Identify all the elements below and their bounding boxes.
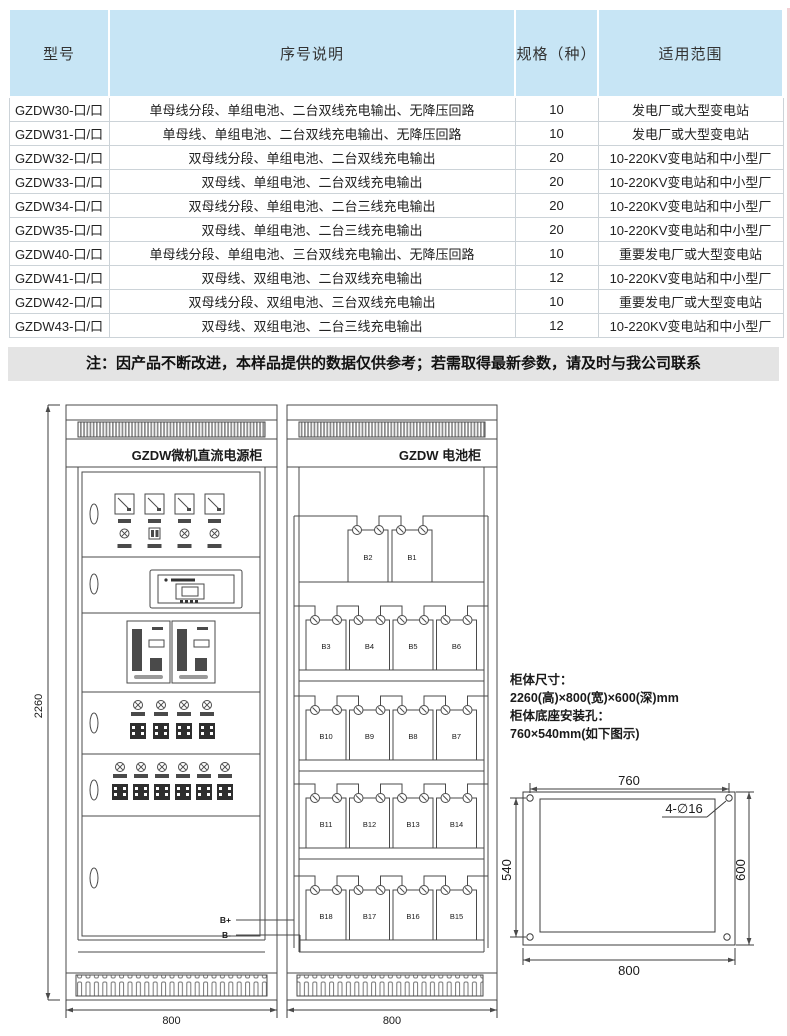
left-width-dimension-label: 800 (162, 1015, 180, 1027)
battery-jumper-wire (337, 784, 359, 794)
spec-cell: 10 (515, 289, 598, 313)
battery-row-wire (468, 876, 489, 886)
battery-jumper-wire (337, 606, 359, 616)
battery-cabinet-title: GZDW 电池柜 (399, 448, 481, 463)
battery-cell: B15 (437, 885, 477, 940)
specs-line-1: 柜体尺寸： (509, 672, 573, 687)
battery-label: B5 (408, 642, 417, 651)
terminal-positive-label: B+ (220, 915, 231, 925)
specs-line-2: 2260(高)×800(宽)×600(深)mm (510, 690, 679, 705)
base-mounting-plan: 4-∅16 760800540600 (499, 773, 754, 978)
model-cell: GZDW34-口/口 (9, 193, 109, 217)
door-handle (90, 504, 98, 524)
col-header-range: 适用范围 (598, 9, 783, 97)
disclaimer-note: 注：因产品不断改进，本样品提供的数据仅供参考；若需取得最新参数，请及时与我公司联… (8, 347, 779, 381)
right-width-dimension-label: 800 (383, 1015, 401, 1027)
table-row: GZDW32-口/口双母线分段、单组电池、二台双线充电输出2010-220KV变… (9, 145, 783, 169)
charger-module (127, 621, 170, 683)
battery-cell: B7 (437, 705, 477, 760)
spec-cell: 10 (515, 121, 598, 145)
battery-jumper-wire (381, 876, 403, 886)
battery-label: B8 (408, 732, 417, 741)
panel-switch (148, 528, 162, 548)
height-dimension-label: 2260 (33, 693, 45, 717)
battery-cell: B6 (437, 615, 477, 670)
range-cell: 重要发电厂或大型变电站 (598, 241, 783, 265)
top-vent-grille (78, 422, 265, 437)
battery-row-wire (294, 876, 315, 886)
mounting-hole (527, 933, 533, 939)
battery-cell: B13 (393, 793, 433, 848)
range-cell: 10-220KV变电站和中小型厂 (598, 169, 783, 193)
battery-jumper-wire (381, 784, 403, 794)
range-cell: 10-220KV变电站和中小型厂 (598, 145, 783, 169)
battery-label: B12 (363, 820, 376, 829)
monitor-unit (150, 570, 242, 608)
col-header-model: 型号 (9, 9, 109, 97)
battery-cell: B5 (393, 615, 433, 670)
table-header-row: 型号 序号说明 规格（种） 适用范围 (9, 9, 783, 97)
table-row: GZDW31-口/口单母线、单组电池、二台双线充电输出、无降压回路10发电厂或大… (9, 121, 783, 145)
battery-row-wire (294, 606, 315, 616)
specs-line-4: 760×540mm(如下图示) (510, 726, 640, 741)
battery-jumper-wire (424, 606, 446, 616)
battery-row-wire (294, 696, 315, 706)
battery-row-wire (423, 516, 488, 526)
feeder-breaker (153, 700, 169, 739)
range-cell: 10-220KV变电站和中小型厂 (598, 193, 783, 217)
battery-row-wire (294, 516, 357, 526)
analog-meter (205, 494, 224, 523)
spec-cell: 12 (515, 313, 598, 337)
datasheet-page: 型号 序号说明 规格（种） 适用范围 GZDW30-口/口单母线分段、单组电池、… (0, 8, 790, 1036)
spec-cell: 20 (515, 193, 598, 217)
indicator-light (208, 529, 222, 548)
battery-jumper-wire (381, 696, 403, 706)
base-left-dimension-label: 540 (499, 859, 514, 881)
model-cell: GZDW32-口/口 (9, 145, 109, 169)
mounting-hole (726, 794, 732, 800)
battery-label: B15 (450, 912, 463, 921)
table-row: GZDW41-口/口双母线、双组电池、二台双线充电输出1210-220KV变电站… (9, 265, 783, 289)
battery-cell: B4 (350, 615, 390, 670)
range-cell: 10-220KV变电站和中小型厂 (598, 313, 783, 337)
model-cell: GZDW42-口/口 (9, 289, 109, 313)
battery-row-wire (468, 784, 489, 794)
door-handle (90, 780, 98, 800)
base-right-dimension-label: 600 (733, 859, 748, 881)
battery-jumper-wire (424, 696, 446, 706)
feeder-breaker (154, 762, 170, 800)
feeder-breaker (217, 762, 233, 800)
battery-label: B9 (365, 732, 374, 741)
feeder-breaker (112, 762, 128, 800)
battery-cell: B11 (306, 793, 346, 848)
desc-cell: 单母线、单组电池、二台双线充电输出、无降压回路 (109, 121, 515, 145)
analog-meter (145, 494, 164, 523)
battery-row-wire (294, 784, 315, 794)
charger-module (172, 621, 215, 683)
desc-cell: 双母线分段、单组电池、二台双线充电输出 (109, 145, 515, 169)
range-cell: 发电厂或大型变电站 (598, 97, 783, 121)
bottom-vent-grille (76, 975, 267, 996)
spec-cell: 20 (515, 145, 598, 169)
desc-cell: 单母线分段、单组电池、三台双线充电输出、无降压回路 (109, 241, 515, 265)
model-cell: GZDW40-口/口 (9, 241, 109, 265)
battery-label: B13 (406, 820, 419, 829)
cabinet-drawing: GZDW微机直流电源柜 GZDW 电池柜 B2B1B3B4B5B6B10B9B8… (0, 392, 790, 1036)
feeder-breaker (133, 762, 149, 800)
table-row: GZDW40-口/口单母线分段、单组电池、三台双线充电输出、无降压回路10重要发… (9, 241, 783, 265)
specs-line-3: 柜体底座安装孔： (509, 708, 610, 723)
door-handle (90, 574, 98, 594)
feeder-breaker (176, 700, 192, 739)
cabinet-specs-text: 柜体尺寸： 2260(高)×800(宽)×600(深)mm 柜体底座安装孔： 7… (509, 672, 679, 741)
range-cell: 重要发电厂或大型变电站 (598, 289, 783, 313)
bottom-vent-grille (297, 975, 483, 996)
spec-cell: 20 (515, 169, 598, 193)
battery-label: B2 (363, 553, 372, 562)
battery-cell: B12 (350, 793, 390, 848)
top-vent-grille (299, 422, 485, 437)
desc-cell: 双母线、单组电池、二台三线充电输出 (109, 217, 515, 241)
model-cell: GZDW35-口/口 (9, 217, 109, 241)
col-header-spec: 规格（种） (515, 9, 598, 97)
desc-cell: 双母线分段、双组电池、三台双线充电输出 (109, 289, 515, 313)
table-row: GZDW30-口/口单母线分段、单组电池、二台双线充电输出、无降压回路10发电厂… (9, 97, 783, 121)
battery-label: B14 (450, 820, 463, 829)
battery-jumper-wire (337, 876, 359, 886)
model-cell: GZDW43-口/口 (9, 313, 109, 337)
base-bottom-dimension-label: 800 (618, 963, 640, 978)
feeder-breaker (196, 762, 212, 800)
feeder-breaker (130, 700, 146, 739)
desc-cell: 双母线、双组电池、二台双线充电输出 (109, 265, 515, 289)
base-top-dimension-label: 760 (618, 773, 640, 788)
battery-label: B1 (407, 553, 416, 562)
battery-label: B3 (321, 642, 330, 651)
battery-jumper-wire (381, 606, 403, 616)
battery-cell: B18 (306, 885, 346, 940)
holes-label: 4-∅16 (665, 801, 702, 816)
feeder-breaker (175, 762, 191, 800)
range-cell: 10-220KV变电站和中小型厂 (598, 265, 783, 289)
table-row: GZDW43-口/口双母线、双组电池、二台三线充电输出1210-220KV变电站… (9, 313, 783, 337)
table-row: GZDW33-口/口双母线、单组电池、二台双线充电输出2010-220KV变电站… (9, 169, 783, 193)
table-row: GZDW35-口/口双母线、单组电池、二台三线充电输出2010-220KV变电站… (9, 217, 783, 241)
battery-jumper-wire (424, 784, 446, 794)
indicator-light (118, 529, 132, 548)
table-row: GZDW34-口/口双母线分段、单组电池、二台三线充电输出2010-220KV变… (9, 193, 783, 217)
indicator-light (178, 529, 192, 548)
spec-cell: 20 (515, 217, 598, 241)
spec-cell: 10 (515, 241, 598, 265)
mounting-hole (724, 933, 730, 939)
desc-cell: 双母线分段、单组电池、二台三线充电输出 (109, 193, 515, 217)
battery-cabinet-drawing: GZDW 电池柜 B2B1B3B4B5B6B10B9B8B7B11B12B13B… (287, 405, 497, 1000)
col-header-desc: 序号说明 (109, 9, 515, 97)
battery-jumper-wire (337, 696, 359, 706)
spec-cell: 12 (515, 265, 598, 289)
models-table: 型号 序号说明 规格（种） 适用范围 GZDW30-口/口单母线分段、单组电池、… (8, 8, 784, 338)
battery-row-wire (468, 696, 489, 706)
model-cell: GZDW31-口/口 (9, 121, 109, 145)
analog-meter (115, 494, 134, 523)
battery-cell: B1 (392, 525, 432, 582)
battery-cell: B17 (350, 885, 390, 940)
desc-cell: 双母线、单组电池、二台双线充电输出 (109, 169, 515, 193)
power-cabinet-title: GZDW微机直流电源柜 (132, 448, 263, 463)
battery-cell: B8 (393, 705, 433, 760)
desc-cell: 单母线分段、单组电池、二台双线充电输出、无降压回路 (109, 97, 515, 121)
battery-cell: B2 (348, 525, 388, 582)
spec-cell: 10 (515, 97, 598, 121)
mounting-hole (527, 794, 533, 800)
range-cell: 10-220KV变电站和中小型厂 (598, 217, 783, 241)
battery-jumper-wire (424, 876, 446, 886)
battery-label: B4 (365, 642, 374, 651)
power-cabinet-drawing: GZDW微机直流电源柜 (66, 405, 277, 1000)
model-cell: GZDW41-口/口 (9, 265, 109, 289)
battery-cell: B10 (306, 705, 346, 760)
model-cell: GZDW30-口/口 (9, 97, 109, 121)
battery-cell: B9 (350, 705, 390, 760)
battery-cell: B14 (437, 793, 477, 848)
battery-label: B18 (319, 912, 332, 921)
terminal-negative-label: B- (222, 930, 231, 940)
range-cell: 发电厂或大型变电站 (598, 121, 783, 145)
model-cell: GZDW33-口/口 (9, 169, 109, 193)
battery-cell: B3 (306, 615, 346, 670)
battery-cell: B16 (393, 885, 433, 940)
battery-label: B10 (319, 732, 332, 741)
battery-label: B17 (363, 912, 376, 921)
door-handle (90, 868, 98, 888)
desc-cell: 双母线、双组电池、二台三线充电输出 (109, 313, 515, 337)
analog-meter (175, 494, 194, 523)
table-row: GZDW42-口/口双母线分段、双组电池、三台双线充电输出10重要发电厂或大型变… (9, 289, 783, 313)
battery-jumper-wire (379, 516, 401, 526)
door-handle (90, 713, 98, 733)
battery-label: B11 (320, 820, 333, 829)
battery-label: B16 (406, 912, 419, 921)
battery-label: B6 (452, 642, 461, 651)
battery-label: B7 (452, 732, 461, 741)
feeder-breaker (199, 700, 215, 739)
battery-row-wire (468, 606, 489, 616)
